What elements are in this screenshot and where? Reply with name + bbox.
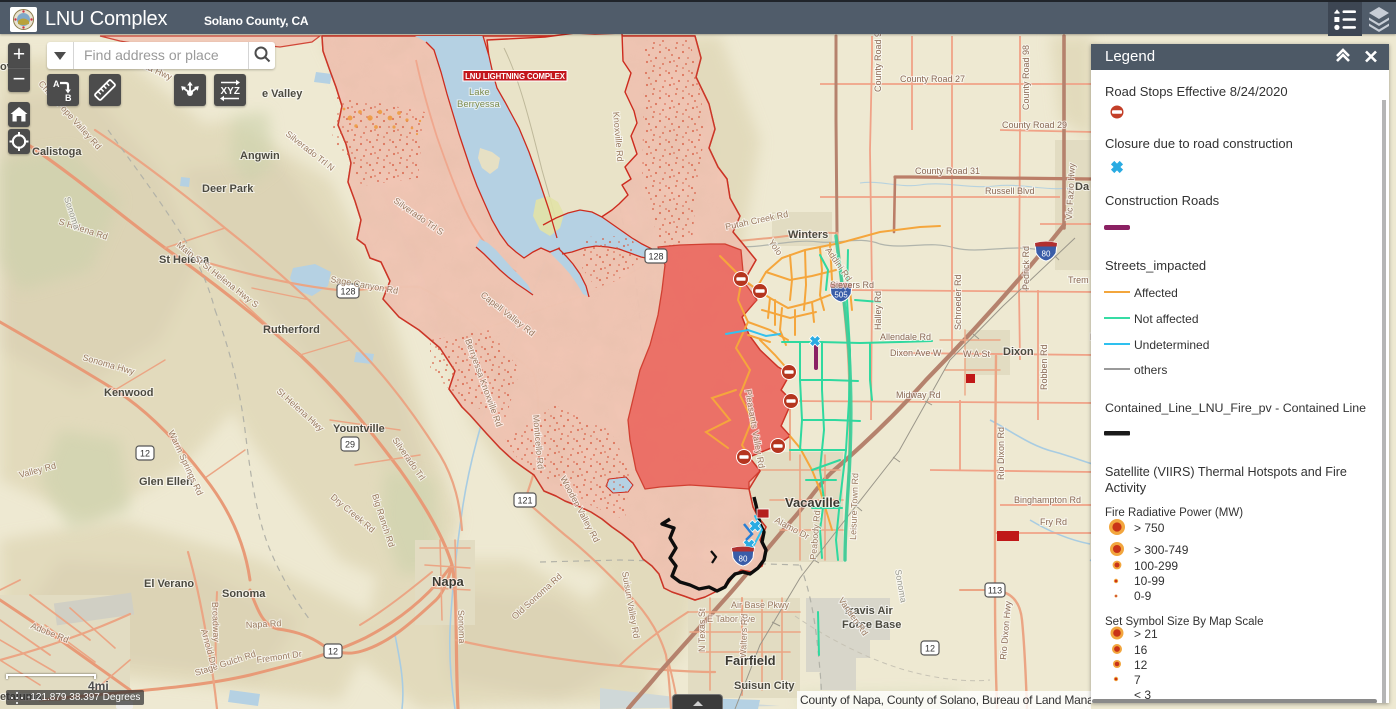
svg-text:Binghampton Rd: Binghampton Rd bbox=[1014, 495, 1081, 505]
svg-text:Calistoga: Calistoga bbox=[32, 146, 82, 158]
svg-text:Rio Dixon Rd: Rio Dixon Rd bbox=[996, 427, 1006, 480]
svg-text:Robben Rd: Robben Rd bbox=[1039, 344, 1049, 390]
svg-text:El Verano: El Verano bbox=[144, 578, 194, 590]
svg-text:80: 80 bbox=[1042, 250, 1051, 259]
svg-text:12: 12 bbox=[925, 644, 935, 654]
svg-text:XYZ: XYZ bbox=[221, 86, 240, 97]
svg-text:Berryessa: Berryessa bbox=[457, 99, 500, 110]
svg-text:Russell Blvd: Russell Blvd bbox=[985, 186, 1035, 196]
svg-text:Walters Rd: Walters Rd bbox=[738, 614, 750, 659]
svg-text:Schroeder Rd: Schroeder Rd bbox=[953, 274, 963, 330]
svg-text:Sonoma: Sonoma bbox=[222, 588, 266, 600]
svg-text:Kenwood: Kenwood bbox=[104, 387, 154, 399]
svg-text:12: 12 bbox=[140, 449, 150, 459]
svg-text:505: 505 bbox=[834, 291, 848, 300]
svg-text:Dixon: Dixon bbox=[1003, 346, 1034, 358]
svg-text:County Road 95: County Road 95 bbox=[873, 27, 883, 92]
svg-text:Fry Rd: Fry Rd bbox=[1040, 517, 1067, 527]
svg-text:N Texas St: N Texas St bbox=[697, 608, 707, 652]
svg-text:Napa: Napa bbox=[432, 574, 465, 589]
svg-text:B: B bbox=[65, 93, 72, 103]
svg-text:Dixon Ave W: Dixon Ave W bbox=[890, 348, 942, 358]
svg-text:Air Base Pkwy: Air Base Pkwy bbox=[731, 600, 790, 610]
svg-text:Glen Ellen: Glen Ellen bbox=[139, 476, 193, 488]
svg-text:113: 113 bbox=[988, 586, 1002, 596]
svg-text:Deer Park: Deer Park bbox=[202, 183, 254, 195]
svg-text:Trem: Trem bbox=[1068, 275, 1089, 285]
svg-text:County Road 31: County Road 31 bbox=[915, 166, 980, 176]
svg-text:County Road 98: County Road 98 bbox=[1021, 45, 1031, 110]
svg-text:Da: Da bbox=[1075, 181, 1090, 193]
svg-text:Allendale Rd: Allendale Rd bbox=[880, 332, 931, 342]
svg-text:County Road 29: County Road 29 bbox=[1002, 120, 1067, 130]
svg-text:Pedrick Rd: Pedrick Rd bbox=[1021, 246, 1031, 290]
svg-text:Midway Rd: Midway Rd bbox=[896, 390, 941, 400]
svg-text:121: 121 bbox=[517, 496, 532, 506]
svg-text:Angwin: Angwin bbox=[240, 150, 280, 162]
svg-text:80: 80 bbox=[739, 555, 748, 564]
svg-text:12: 12 bbox=[328, 647, 338, 657]
svg-text:Lake: Lake bbox=[469, 87, 490, 98]
svg-text:Vacaville: Vacaville bbox=[785, 495, 840, 510]
svg-text:Fairfield: Fairfield bbox=[725, 653, 776, 668]
svg-text:Yountville: Yountville bbox=[333, 423, 385, 435]
svg-text:29: 29 bbox=[345, 440, 355, 450]
svg-text:Halley Rd: Halley Rd bbox=[873, 291, 883, 330]
svg-text:Sonoma: Sonoma bbox=[456, 610, 467, 644]
svg-text:Suisun City: Suisun City bbox=[734, 680, 795, 692]
svg-text:Winters: Winters bbox=[788, 229, 828, 241]
svg-text:128: 128 bbox=[648, 252, 663, 262]
svg-text:e Valley: e Valley bbox=[262, 88, 303, 100]
svg-text:Napa Rd: Napa Rd bbox=[246, 618, 282, 630]
svg-text:W A St: W A St bbox=[963, 349, 991, 359]
svg-text:A: A bbox=[53, 79, 60, 89]
svg-text:Sievers Rd: Sievers Rd bbox=[830, 280, 874, 290]
svg-text:LNU LIGHTNING COMPLEX: LNU LIGHTNING COMPLEX bbox=[465, 72, 566, 81]
svg-text:County Road 27: County Road 27 bbox=[900, 74, 965, 84]
svg-text:Rutherford: Rutherford bbox=[263, 324, 320, 336]
